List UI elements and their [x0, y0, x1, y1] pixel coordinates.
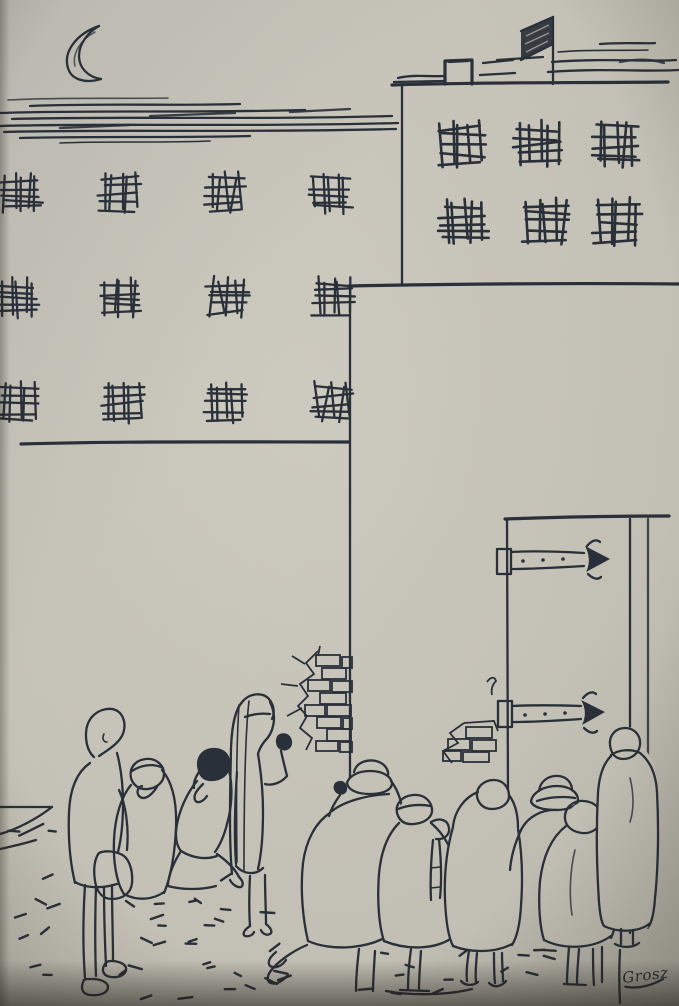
scanned-drawing-page: Grosz — [0, 0, 679, 1006]
artwork-canvas: Grosz — [0, 0, 679, 1006]
photo-vignette — [0, 0, 679, 1006]
